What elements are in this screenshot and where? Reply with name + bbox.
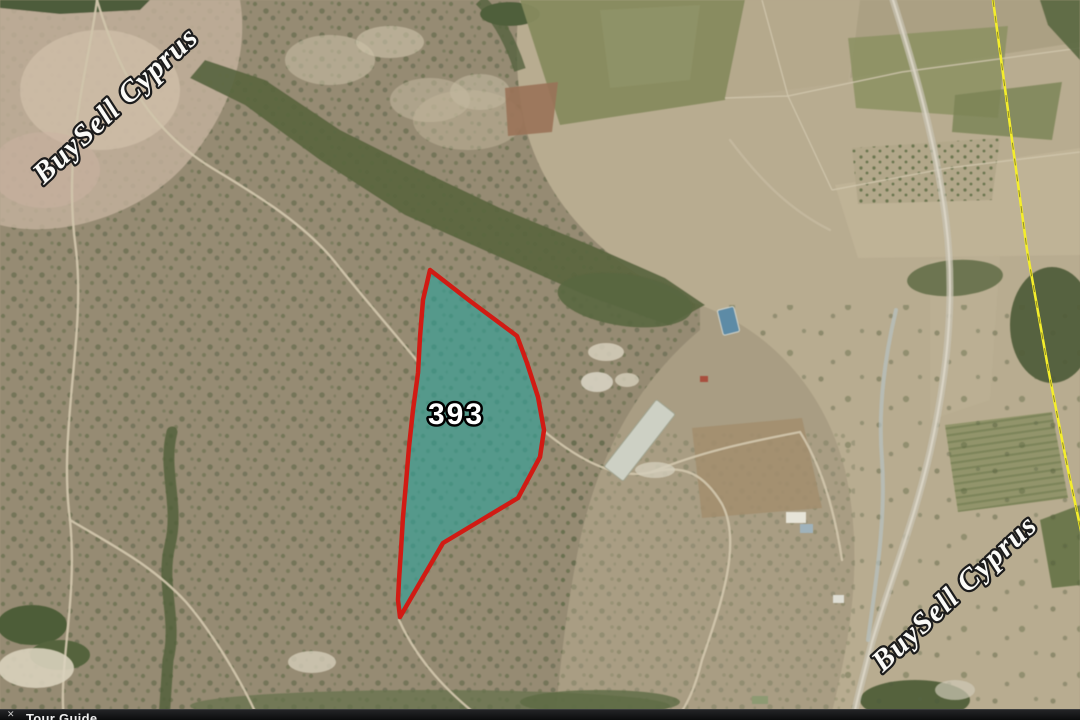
tour-guide-bar[interactable]: ✕ Tour Guide bbox=[0, 709, 1080, 720]
parcel-label: 393 bbox=[428, 398, 484, 431]
google-earth-viewport[interactable]: 393 BuySell Cyprus BuySell Cyprus ✕ Tour… bbox=[0, 0, 1080, 720]
close-icon[interactable]: ✕ bbox=[7, 710, 15, 720]
tour-guide-label: Tour Guide bbox=[26, 711, 97, 720]
satellite-imagery: 393 BuySell Cyprus BuySell Cyprus bbox=[0, 0, 1080, 720]
